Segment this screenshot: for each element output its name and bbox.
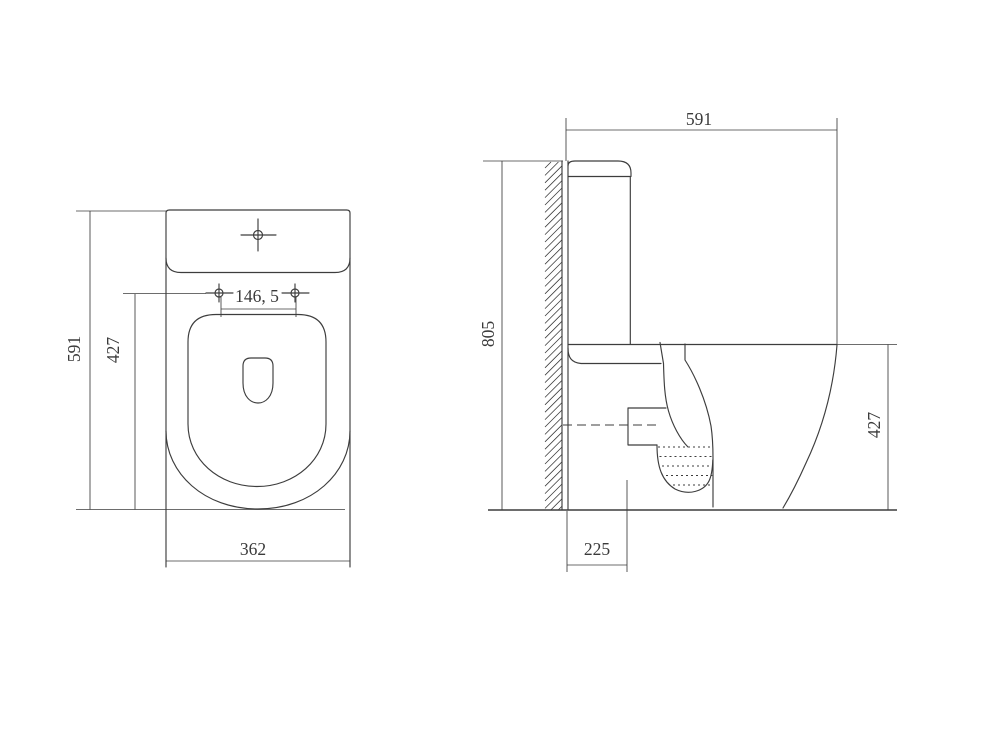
side-dim-591-label: 591 — [686, 109, 712, 129]
side-bowl-interior-curve — [664, 364, 689, 448]
drawing-canvas: 591 427 146, 5 362 — [0, 0, 1000, 750]
plan-object-lines — [166, 210, 350, 567]
plan-dim-362-label: 362 — [240, 539, 266, 559]
side-cistern-outline — [568, 161, 631, 344]
plan-flush-spot — [243, 358, 273, 403]
plan-bowl-outer — [166, 431, 350, 509]
plan-hinge-hole-left — [206, 284, 233, 302]
side-dim-805-label: 805 — [478, 321, 498, 348]
wall-hatch — [545, 161, 562, 510]
toilet-technical-drawing: 591 427 146, 5 362 — [0, 0, 1000, 750]
plan-dim-427-label: 427 — [103, 337, 123, 364]
plan-dim-146-label: 146, 5 — [235, 286, 279, 306]
side-dim-427-label: 427 — [864, 412, 884, 439]
side-view: 591 805 427 225 — [478, 109, 897, 572]
side-trap-box — [628, 408, 666, 445]
side-rim-back-edge — [660, 343, 664, 364]
side-object-lines — [568, 161, 837, 510]
plan-body-outline — [166, 210, 350, 567]
plan-hinge-hole-right — [282, 284, 309, 302]
plan-dim-591-label: 591 — [64, 336, 84, 362]
side-water-level-lines — [658, 447, 712, 485]
plan-dimension-lines — [76, 211, 350, 561]
plan-view: 591 427 146, 5 362 — [64, 210, 350, 567]
plan-cistern-bottom — [166, 258, 350, 273]
side-rim-line — [568, 348, 661, 364]
wall-hatch-lines — [545, 162, 562, 510]
plan-seat-outline — [188, 315, 326, 487]
side-dim-225-label: 225 — [584, 539, 611, 559]
side-bowl-front-curve — [783, 345, 837, 508]
plan-inlet-mark — [241, 219, 276, 251]
